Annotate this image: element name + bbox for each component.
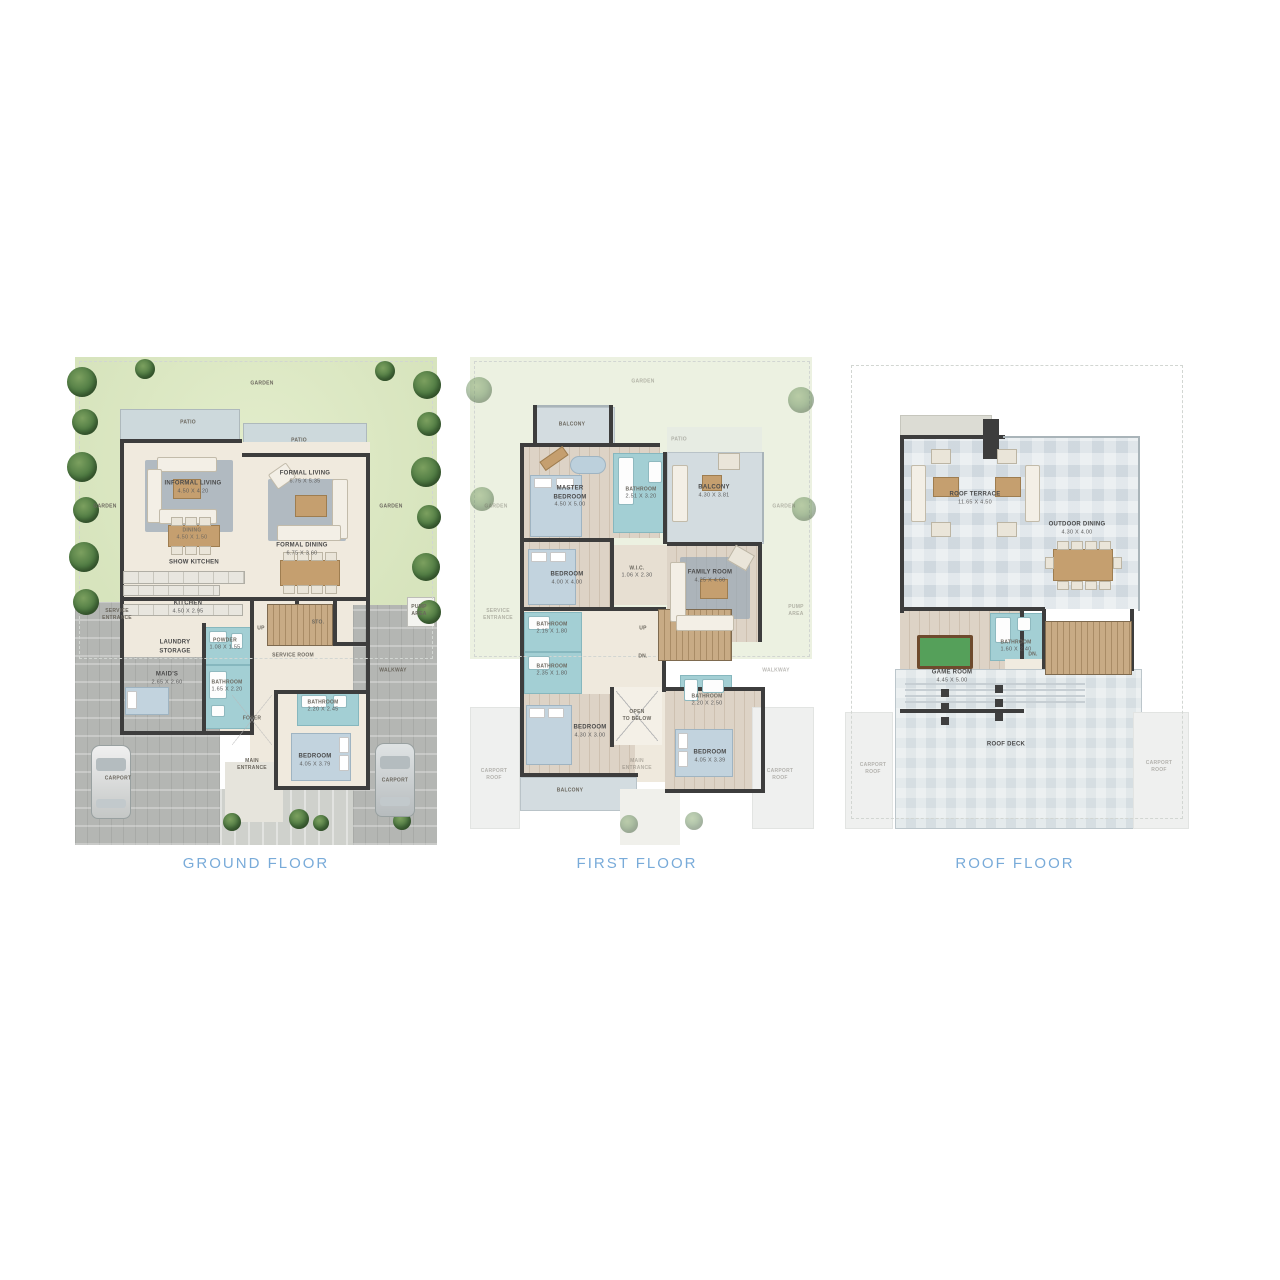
room-label-sto: STO. [312,619,325,626]
room-label-carport-roof-left: CARPORT ROOF [481,768,507,783]
sofa [1025,465,1040,522]
wall [274,690,278,790]
room-label-bathroom-2: BATHROOM2.35 X 1.80 [536,663,567,678]
room-label-bedroom-br: BEDROOM4.05 X 3.39 [693,749,726,766]
floor-title-first: FIRST FLOOR [577,855,698,872]
room-label-bedroom: BEDROOM4.05 X 3.79 [298,753,331,770]
planter [941,689,949,697]
sofa [676,615,734,631]
toilet-fixture [211,705,225,717]
room-label-garden-ghost: GARDEN [631,378,654,385]
room-label-bedroom-mid: BEDROOM4.00 X 4.00 [550,571,583,588]
stairs [1045,621,1132,675]
chair [185,546,197,555]
pillow [529,708,545,718]
room-label-garden-top: GARDEN [250,380,273,387]
room-label-walkway: WALKWAY [379,667,406,674]
room-label-wic: W.I.C.1.06 X 2.30 [622,565,653,580]
chair [1045,557,1054,569]
room-label-maid-bathroom: BATHROOM1.65 X 2.20 [211,679,242,694]
planter [995,699,1003,707]
kitchen-counter [123,571,245,584]
pillow [550,552,566,562]
tree-icon [417,505,441,529]
room-label-balcony-right: BALCONY4.30 X 3.81 [698,484,729,501]
pillow [531,552,547,562]
room-label-up: UP [639,625,646,632]
room-label-bathroom: BATHROOM2.20 X 2.45 [307,699,338,714]
room-label-dn: DN. [638,653,647,660]
formal-dining-table [280,560,340,586]
armchair [931,522,951,537]
coffee-table [295,495,327,517]
chair [1099,541,1111,550]
kitchen-island [123,585,220,596]
room-label-informal-living: INFORMAL LIVING4.50 X 4.20 [165,480,222,497]
room-label-garden-left-ghost: GARDEN [484,503,507,510]
wall [665,789,765,793]
room-label-up: UP [257,625,264,632]
plot-boundary-line [474,361,810,657]
shrub-icon [313,815,329,831]
wall [274,786,370,790]
room-label-formal-living: FORMAL LIVING6.75 X 5.35 [280,470,330,487]
sofa [911,465,926,522]
room-label-patio-2: PATIO [291,437,307,444]
tree-icon [72,409,98,435]
room-label-carport-roof-right: CARPORT ROOF [767,768,793,783]
room-label-dn: DN. [1028,651,1037,658]
sink-fixture [648,461,662,483]
chair [1057,541,1069,550]
chair [1113,557,1122,569]
room-label-powder: POWDER1.08 X 1.55 [210,637,241,652]
room-label-laundry-storage: LAUNDRY STORAGE [159,638,190,655]
sofa [672,465,688,522]
chair [171,517,183,526]
room-label-service-entrance-ghost: SERVICE ENTRANCE [483,608,513,623]
tree-icon [417,412,441,436]
room-label-foyer: FOYER [243,715,261,722]
pillow [548,708,564,718]
room-label-master-bedroom: MASTER BEDROOM4.50 X 5.00 [553,484,586,509]
planter [995,685,1003,693]
room-label-patio-ghost: PATIO [671,436,687,443]
sofa [277,525,341,541]
chair [1085,541,1097,550]
room-label-family-room: FAMILY ROOM4.25 X 4.60 [688,569,732,586]
room-label-garden-right: GARDEN [379,503,402,510]
armchair [718,453,740,470]
chair [1085,581,1097,590]
planter [941,717,949,725]
room-label-service-entrance: SERVICE ENTRANCE [102,608,132,623]
room-label-master-bathroom: BATHROOM2.51 X 3.20 [625,486,656,501]
sofa [157,457,217,472]
chair [1057,581,1069,590]
wall [520,773,638,777]
planter [995,713,1003,721]
pillow [534,478,552,488]
room-label-roof-terrace: ROOF TERRACE11.65 X 4.50 [950,491,1001,508]
room-label-game-room: GAME ROOM4.45 X 5.00 [932,669,973,686]
room-label-main-entrance: MAIN ENTRANCE [237,758,267,773]
room-label-carport-right: CARPORT [382,777,408,784]
pillow [339,737,349,753]
pillow [678,733,688,749]
room-label-bedroom-bl: BEDROOM4.30 X 3.00 [573,724,606,741]
room-label-dining: DINING4.50 X 1.50 [177,527,208,542]
chair [1099,581,1111,590]
pool-table [917,635,973,669]
tree-icon [375,361,395,381]
tree-icon [73,589,99,615]
armchair [997,449,1017,464]
room-label-balcony-top: BALCONY [559,421,585,428]
roof-floor-plan: ROOF TERRACE11.65 X 4.50 OUTDOOR DINING4… [845,357,1187,845]
sink-fixture [1017,617,1031,631]
room-label-service-room: SERVICE ROOM [272,652,314,659]
room-label-carport-left: CARPORT [105,775,131,782]
tree-icon [67,367,97,397]
room-label-main-entrance-ghost: MAIN ENTRANCE [622,758,652,773]
chair [311,585,323,594]
plot-boundary-line [851,365,1183,819]
armchair [931,449,951,464]
room-label-garden-right-ghost: GARDEN [772,503,795,510]
room-label-kitchen: KITCHEN4.50 X 2.95 [173,600,204,617]
shrub-icon [620,815,638,833]
room-label-maids: MAID'S2.65 X 2.60 [152,671,183,688]
room-label-show-kitchen: SHOW KITCHEN [169,559,219,568]
tub-fixture [702,679,724,693]
room-label-pump-area-ghost: PUMP AREA [788,604,803,619]
wall [761,687,765,793]
planter [941,703,949,711]
tree-icon [412,553,440,581]
tree-icon [413,371,441,399]
tree-icon [69,542,99,572]
floor-plan-sheet: { "colors": { "accent_label_blue": "#79a… [0,0,1280,1280]
chair [185,517,197,526]
chair [199,546,211,555]
tree-icon [788,387,814,413]
chair [283,585,295,594]
outdoor-dining-table [1053,549,1113,581]
pillow [339,755,349,771]
armchair [997,522,1017,537]
room-label-bathroom-3: BATHROOM2.20 X 2.50 [691,693,722,708]
room-label-carport-roof-left: CARPORT ROOF [860,762,886,777]
tree-icon [466,377,492,403]
tree-icon [411,457,441,487]
tree-icon [67,452,97,482]
first-floor-plan: GARDEN BALCONY PATIO MASTER BEDROOM4.50 … [470,357,812,845]
sofa [670,562,686,622]
shrub-icon [289,809,309,829]
wall [610,687,614,747]
room-label-formal-dining: FORMAL DINING6.75 X 3.60 [276,542,327,559]
tree-icon [792,497,816,521]
chair [1071,581,1083,590]
room-label-pump-area: PUMP AREA [411,604,426,619]
wall [274,690,370,694]
room-label-bathroom-1: BATHROOM2.15 X 1.80 [536,621,567,636]
chair [325,585,337,594]
tree-icon [135,359,155,379]
room-label-patio-1: PATIO [180,419,196,426]
pillow [127,691,137,709]
chair [171,546,183,555]
room-label-outdoor-dining: OUTDOOR DINING4.30 X 4.00 [1049,521,1106,538]
room-label-carport-roof-right: CARPORT ROOF [1146,760,1172,775]
room-label-balcony-bottom: BALCONY [557,787,583,794]
floor-title-roof: ROOF FLOOR [955,855,1074,872]
chair [199,517,211,526]
shrub-icon [685,812,703,830]
room-label-garden-left: GARDEN [93,503,116,510]
floor-title-ground: GROUND FLOOR [183,855,330,872]
chair [297,585,309,594]
ground-floor-plan: GARDEN PATIO PATIO INFORMAL LIVING4.50 X… [75,357,437,845]
room-label-roof-deck: ROOF DECK [987,741,1025,750]
pillow [678,751,688,767]
room-label-walkway-ghost: WALKWAY [762,667,789,674]
chair [1071,541,1083,550]
wall [366,690,370,790]
shrub-icon [223,813,241,831]
room-label-bathroom: BATHROOM1.60 X 2.40 [1000,639,1031,654]
room-label-open-to-below: OPEN TO BELOW [623,709,652,724]
